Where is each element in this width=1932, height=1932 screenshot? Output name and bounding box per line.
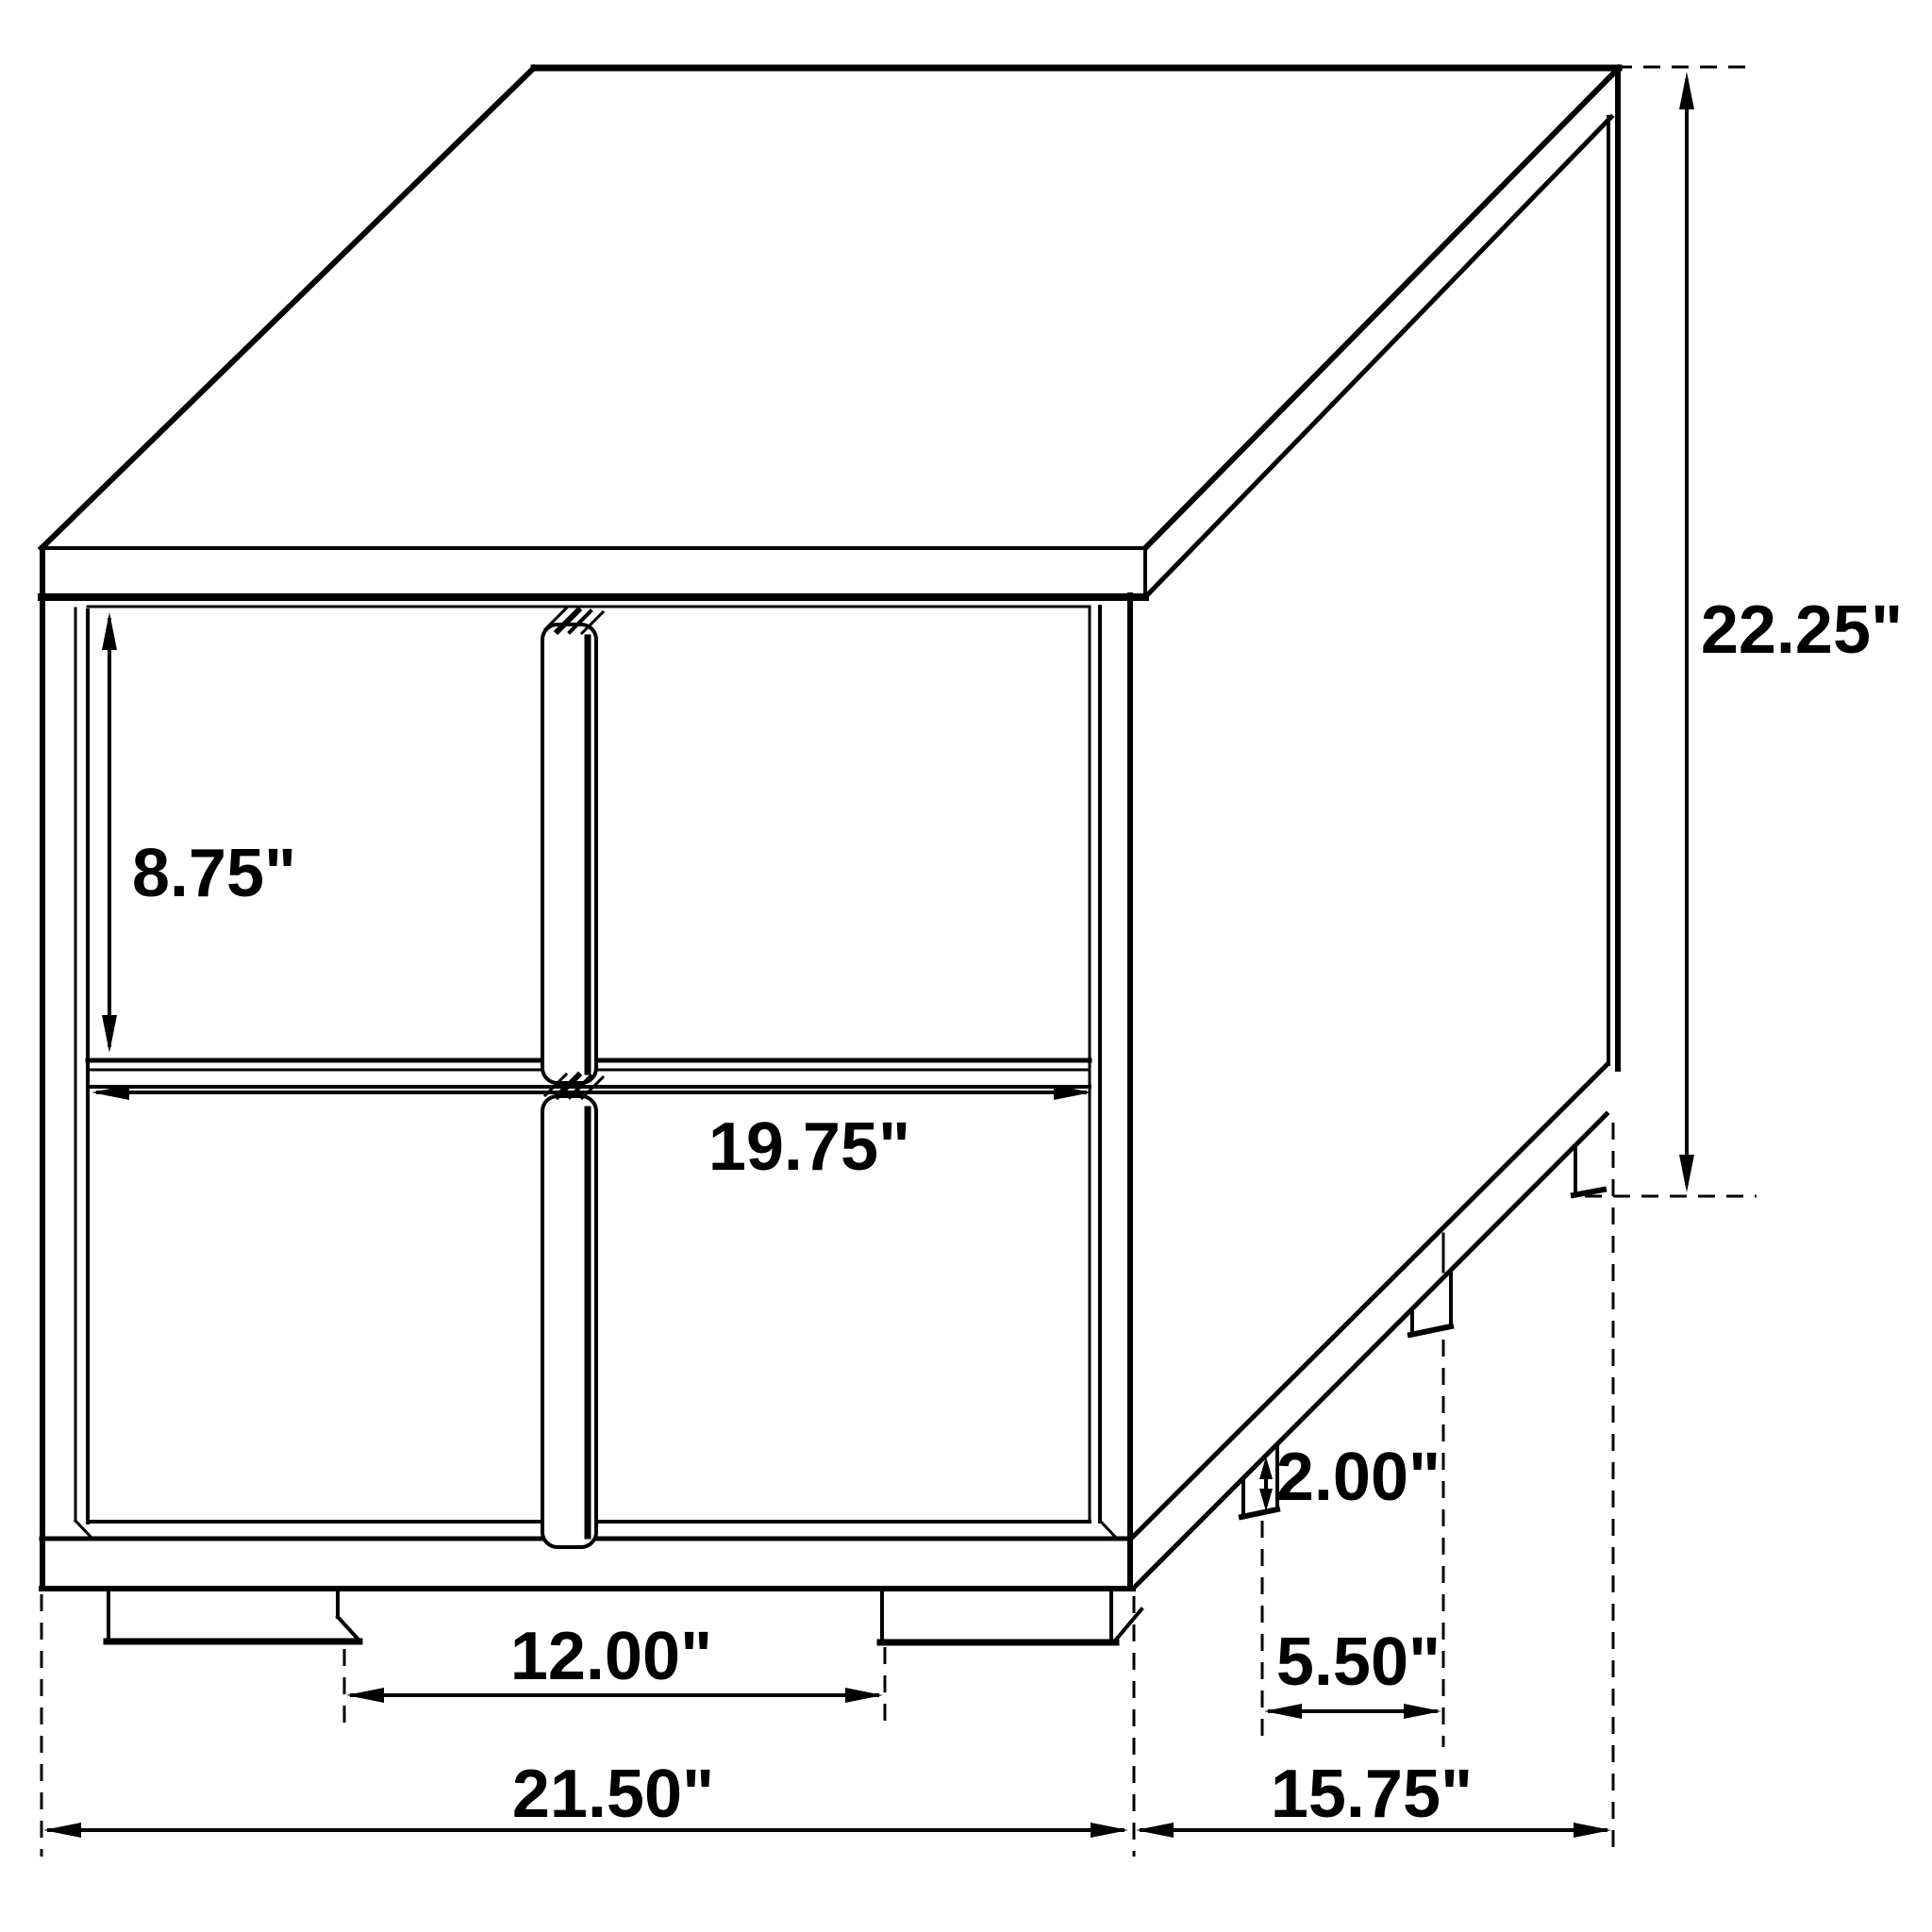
foot-bottom-edge [1241,1509,1277,1517]
arrowhead-right [1574,1823,1611,1838]
side-back-foot [1574,1148,1604,1195]
foot-bottom-edge [1574,1190,1604,1195]
foot-right-bevel [1116,1609,1141,1640]
dimension-drawing-canvas: 8.75" 19.75" 22.25" 2.00" 5.50" [0,0,1932,1932]
dim-side-feet-gap: 5.50" [1262,1340,1443,1747]
dim-label-front-feet-gap: 12.00" [510,1619,712,1694]
dim-overall-height: 22.25" [1585,67,1903,1196]
arrowhead-left [1264,1704,1302,1719]
arrowhead-left [346,1688,384,1703]
dim-label-drawer-opening-height: 8.75" [132,836,296,911]
dim-label-side-feet-gap: 5.50" [1276,1624,1441,1700]
dim-label-drawer-width: 19.75" [708,1109,910,1185]
arrowhead-left [1136,1823,1174,1838]
dim-front-feet-gap: 12.00" [344,1619,885,1732]
nightstand-dimension-diagram: 8.75" 19.75" 22.25" 2.00" 5.50" [0,0,1932,1932]
dim-label-overall-width: 21.50" [512,1757,714,1832]
arrowhead-down [1259,1489,1273,1511]
drawer-handles [542,608,603,1547]
front-left-foot [107,1589,359,1641]
dim-label-overall-depth: 15.75" [1271,1757,1473,1832]
arrowhead-up [1679,72,1694,109]
side-front-foot [1241,1446,1277,1517]
front-right-foot [880,1589,1141,1642]
arrowhead-right [1404,1704,1441,1719]
dim-label-overall-height: 22.25" [1701,592,1903,668]
arrowhead-right [1091,1823,1128,1838]
foot-right-bevel [338,1617,358,1640]
top-slab-front-face [42,548,1145,597]
arrowhead-left [43,1823,81,1838]
arrowhead-down [1679,1155,1694,1192]
foot-bottom-edge [1410,1326,1451,1335]
cabinet-faces [42,68,1619,1589]
arrowhead-right [845,1688,883,1703]
dim-label-foot-height: 2.00" [1276,1440,1441,1515]
dim-foot-height: 2.00" [1259,1440,1441,1515]
